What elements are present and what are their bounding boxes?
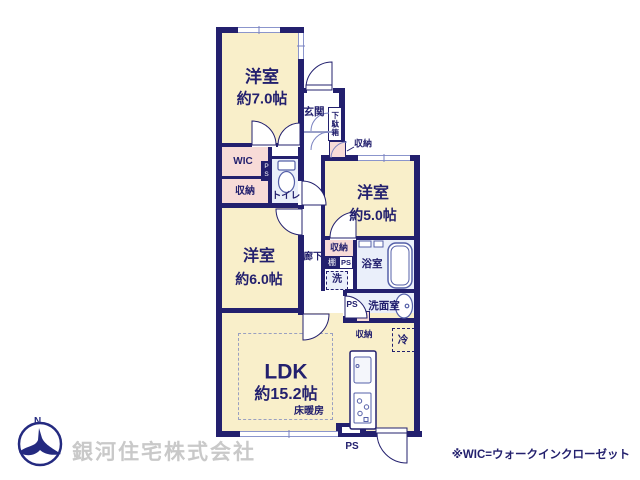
- ps-shaft-wic: PS: [261, 161, 272, 181]
- corridor-floor: [304, 93, 321, 315]
- bathroom-label: 浴室: [362, 259, 383, 270]
- storage-label: 収納: [355, 330, 372, 339]
- room-ldk-label: LDK: [264, 362, 307, 383]
- window: [238, 27, 280, 33]
- ps-shaft-hall: PS: [339, 256, 353, 269]
- wic-label: WIC: [233, 157, 252, 167]
- storage-label: 収納: [330, 244, 348, 253]
- wall: [343, 289, 420, 293]
- room-ldk-size: 約15.2帖: [254, 387, 317, 403]
- wall: [321, 159, 325, 291]
- door-opening: [278, 143, 300, 147]
- wall: [216, 203, 304, 208]
- wall: [353, 240, 357, 291]
- bird-icon: [19, 428, 61, 455]
- wall: [216, 27, 222, 437]
- room-western7-size: 約7.0帖: [237, 92, 288, 107]
- refrigerator-label: 冷: [398, 335, 409, 346]
- room-western7-floor: [220, 29, 304, 145]
- door-opening: [307, 88, 333, 93]
- wall: [414, 155, 420, 437]
- wall: [216, 308, 304, 313]
- toilet-label: トイレ: [272, 191, 301, 201]
- door-opening: [298, 209, 304, 235]
- svg-text:N: N: [34, 416, 41, 427]
- company-logo: N: [12, 412, 68, 472]
- ps-label: PS: [346, 300, 357, 309]
- room-western6-label: 洋室: [243, 249, 275, 265]
- label-pointer: [347, 147, 354, 151]
- window: [358, 155, 410, 161]
- washroom-storage-box: [356, 311, 370, 322]
- wall: [298, 27, 304, 315]
- door-opening: [252, 143, 276, 147]
- washer-label: 洗: [332, 275, 342, 285]
- corridor-label: 廊下: [303, 252, 322, 262]
- storage-label: 収納: [235, 187, 255, 197]
- room-western5-label: 洋室: [357, 186, 389, 202]
- entrance-label: 玄関: [304, 107, 325, 118]
- washroom-label: 洗面室: [368, 301, 400, 312]
- shelf-box: 棚: [325, 256, 339, 269]
- wall: [268, 156, 304, 159]
- company-name: 銀河住宅株式会社: [72, 436, 256, 466]
- door-opening: [377, 431, 407, 437]
- floor-plan-page: PS 棚 PS: [0, 0, 640, 480]
- door-opening: [330, 236, 356, 240]
- entrance-storage-box: [329, 141, 346, 158]
- wall: [343, 318, 420, 323]
- room-western5-size: 約5.0帖: [349, 208, 396, 222]
- ps-shaft-box: [341, 426, 361, 434]
- wic-note: ※WIC=ウォークインクローゼット: [452, 446, 630, 462]
- room-western6-size: 約6.0帖: [235, 272, 282, 286]
- ps-label: PS: [345, 442, 358, 452]
- room-western7-label: 洋室: [245, 69, 279, 86]
- ps-label: PS: [341, 258, 351, 267]
- storage-label: 収納: [354, 140, 372, 149]
- shelf-label: 棚: [328, 257, 336, 268]
- window: [298, 33, 304, 59]
- shoe-cabinet-label: 下駄箱: [331, 111, 339, 137]
- ps-label: PS: [263, 163, 270, 179]
- floor-heating-label: 床暖房: [294, 407, 324, 417]
